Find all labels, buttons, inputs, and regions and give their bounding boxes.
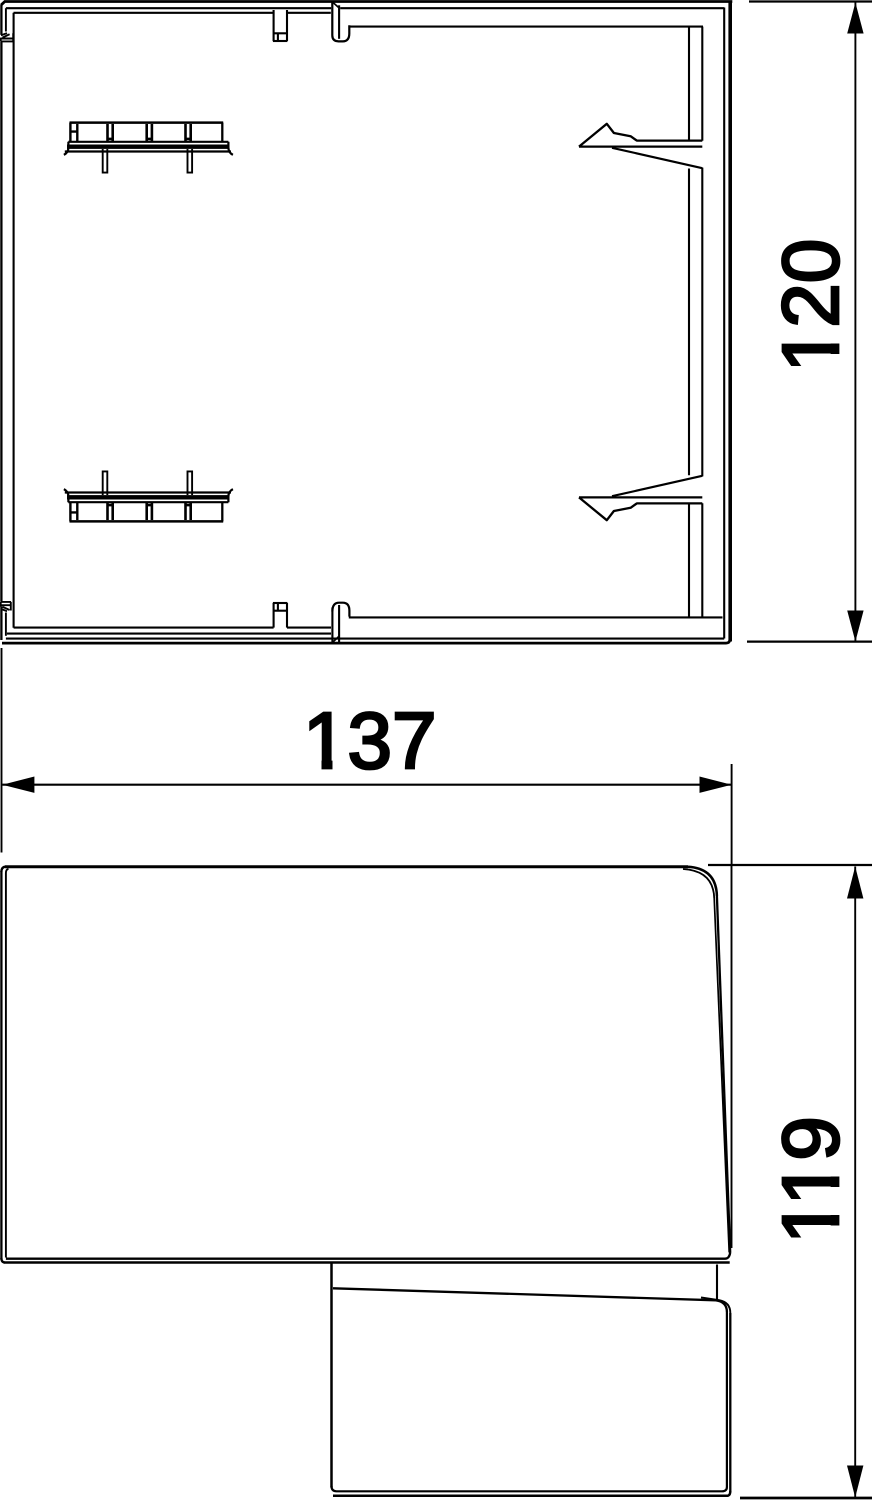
- svg-text:137: 137: [303, 696, 436, 785]
- svg-text:120: 120: [766, 239, 855, 372]
- svg-text:119: 119: [766, 1116, 855, 1244]
